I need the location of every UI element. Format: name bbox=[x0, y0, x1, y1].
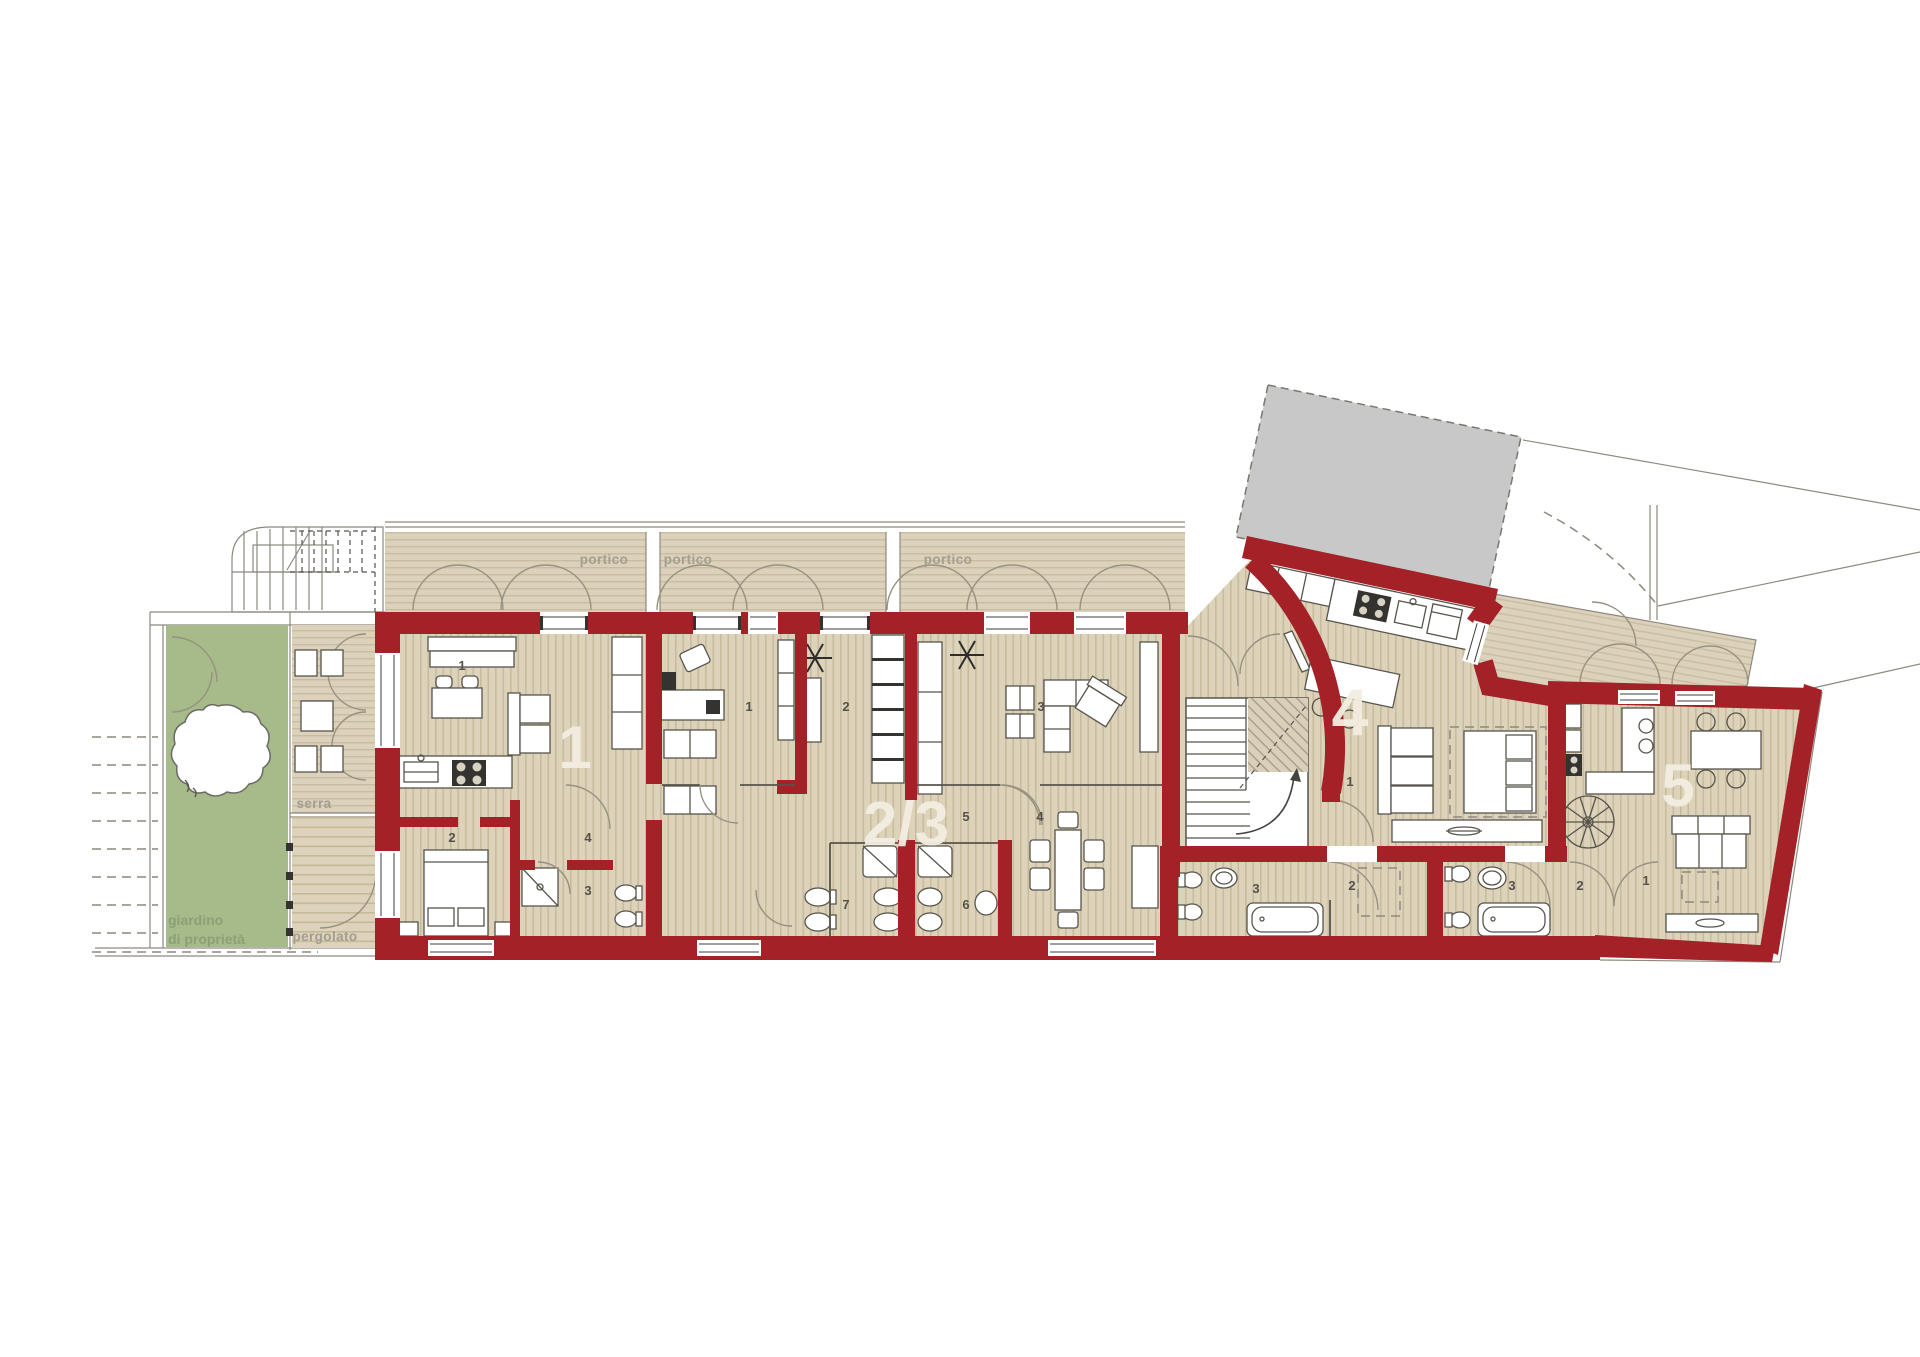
portico-label-1: portico bbox=[580, 552, 629, 567]
unit-1-number: 1 bbox=[558, 714, 591, 781]
portico-band bbox=[385, 522, 1185, 612]
unit-5-number: 5 bbox=[1661, 752, 1694, 819]
room-number: 3 bbox=[1037, 699, 1044, 714]
stairwell bbox=[1186, 698, 1308, 848]
room-number: 3 bbox=[584, 883, 591, 898]
portico-4-5 bbox=[1469, 594, 1756, 686]
external-stairs bbox=[232, 527, 383, 612]
room-number: 5 bbox=[962, 809, 969, 824]
serra-label: serra bbox=[296, 796, 331, 811]
room-number: 4 bbox=[1036, 809, 1044, 824]
room-number: 1 bbox=[1346, 774, 1353, 789]
portico-label-3: portico bbox=[924, 552, 973, 567]
room-number: 6 bbox=[962, 897, 969, 912]
room-number: 2 bbox=[1576, 878, 1583, 893]
floor-plan-drawing: portico portico portico serra pergolato … bbox=[0, 0, 1920, 1357]
room-number: 2 bbox=[842, 699, 849, 714]
room-number: 3 bbox=[1508, 878, 1515, 893]
room-number: 2 bbox=[1348, 878, 1355, 893]
private-garden bbox=[166, 625, 288, 947]
floor-plan-page: portico portico portico serra pergolato … bbox=[0, 0, 1920, 1357]
room-number: 7 bbox=[842, 897, 849, 912]
room-number: 3 bbox=[1252, 881, 1259, 896]
room-number: 1 bbox=[458, 658, 465, 673]
room-number: 1 bbox=[745, 699, 752, 714]
unit-4-number: 4 bbox=[1332, 675, 1369, 749]
portico-label-2: portico bbox=[664, 552, 713, 567]
garden-label-line2: di proprietà bbox=[168, 931, 245, 947]
unit-2-3-number: 2/3 bbox=[863, 790, 949, 859]
room-number: 2 bbox=[448, 830, 455, 845]
pergolato-label: pergolato bbox=[292, 929, 357, 944]
room-number: 4 bbox=[584, 830, 592, 845]
room-number: 1 bbox=[1642, 873, 1649, 888]
garden-label-line1: giardino bbox=[168, 912, 223, 928]
